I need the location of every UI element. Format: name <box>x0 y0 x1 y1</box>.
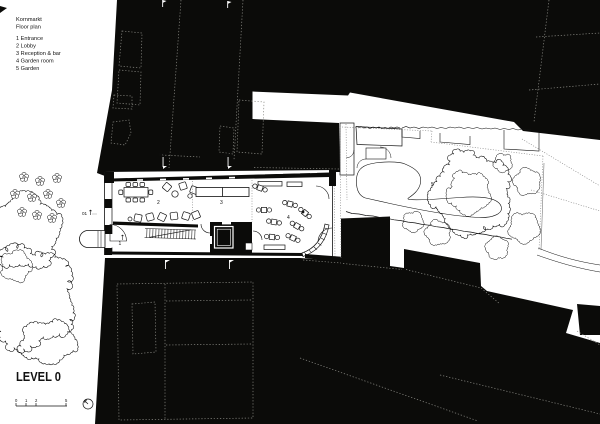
svg-text:2 Lobby: 2 Lobby <box>16 44 36 50</box>
svg-text:2: 2 <box>157 200 160 206</box>
svg-text:5 Garden: 5 Garden <box>16 66 39 72</box>
svg-text:LEVEL 0: LEVEL 0 <box>16 369 61 384</box>
svg-text:S2: S2 <box>159 152 165 157</box>
svg-text:3: 3 <box>220 200 223 206</box>
svg-text:4: 4 <box>287 215 290 221</box>
svg-text:Kornmarkt: Kornmarkt <box>16 17 42 23</box>
svg-text:S3: S3 <box>224 152 230 157</box>
svg-text:Floor plan: Floor plan <box>16 25 41 31</box>
svg-text:3 Reception & bar: 3 Reception & bar <box>16 51 61 57</box>
svg-text:01: 01 <box>82 211 88 216</box>
svg-text:4 Garden room: 4 Garden room <box>16 59 54 65</box>
svg-text:1: 1 <box>119 241 122 247</box>
svg-text:1 Entrance: 1 Entrance <box>16 36 43 42</box>
